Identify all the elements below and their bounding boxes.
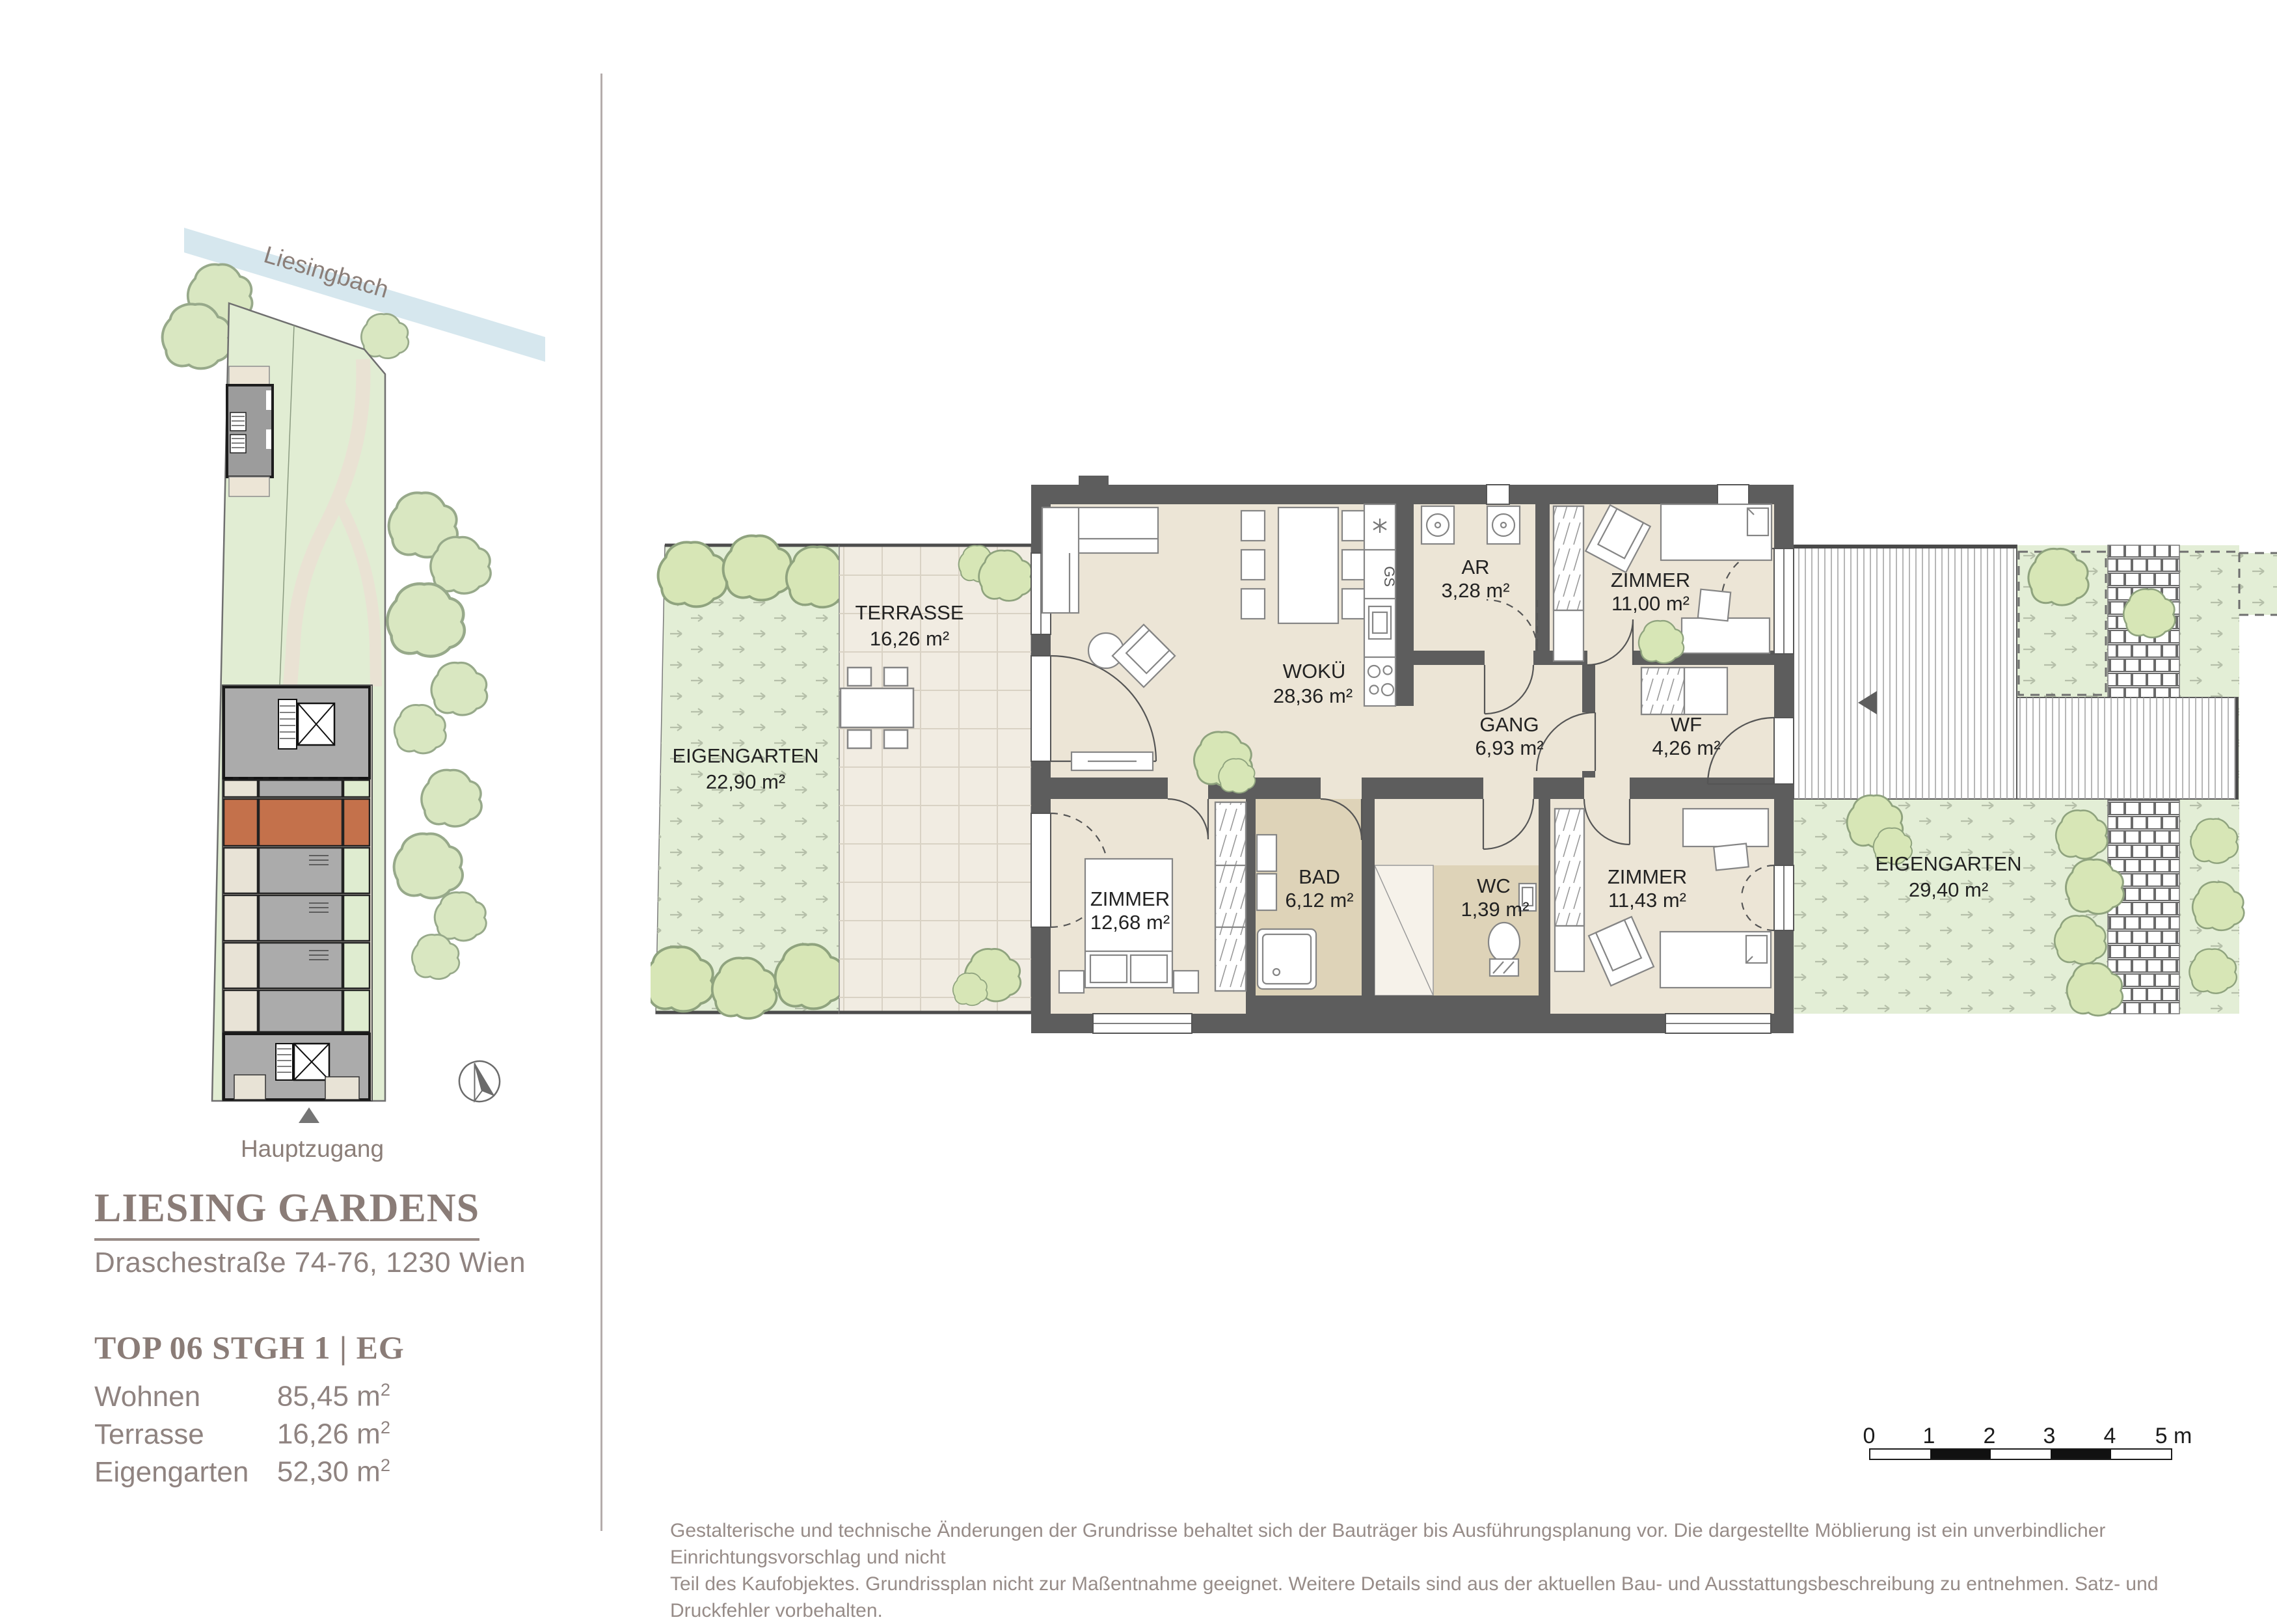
room-area-gang: 6,93 m² [1475, 737, 1543, 759]
room-label-eigengarten-left: EIGENGARTEN [672, 744, 818, 767]
dining-set [1241, 507, 1366, 623]
page-title: LIESING GARDENS [94, 1185, 479, 1241]
area-label: Wohnen [94, 1381, 200, 1413]
room-label-terrasse: TERRASSE [855, 601, 963, 624]
scale-tick: 1 [1923, 1424, 1935, 1449]
garden-left: EIGENGARTEN 22,90 m² [651, 535, 851, 1018]
scale-tick: 4 [2104, 1424, 2116, 1449]
dishwasher-label: GS [1381, 566, 1397, 587]
unit-title: TOP 06 STGH 1 | EG [94, 1329, 405, 1366]
area-row-eigengarten: Eigengarten 52,30 m2 [94, 1455, 390, 1493]
room-area-wf: 4,26 m² [1652, 737, 1720, 759]
highlighted-unit-top06 [224, 799, 370, 846]
area-value: 16,26 m2 [277, 1417, 390, 1451]
disclaimer: Gestalterische und technische Änderungen… [670, 1517, 2257, 1624]
terrace: TERRASSE 16,26 m² [839, 545, 1032, 1014]
room-label-zimmer3: ZIMMER [1608, 865, 1687, 888]
hauptzugang-marker: Hauptzugang [241, 1107, 384, 1162]
area-value: 85,45 m2 [277, 1379, 390, 1413]
site-main-building [222, 685, 372, 1101]
scale-bar: 0 1 2 3 4 5 m [1869, 1424, 2175, 1463]
area-table: Wohnen 85,45 m2 Terrasse 16,26 m2 Eigeng… [94, 1379, 390, 1493]
wardrobe-bedroom3 [1555, 809, 1584, 971]
scale-tick: 5 m [2155, 1424, 2192, 1449]
site-plan: Liesingbach [65, 202, 586, 1178]
scale-bar-segments [1869, 1448, 2172, 1460]
room-label-wc: WC [1477, 874, 1511, 897]
scale-tick: 3 [2043, 1424, 2056, 1449]
bed-bedroom3 [1660, 932, 1771, 988]
room-label-bad: BAD [1299, 865, 1340, 888]
area-label: Eigengarten [94, 1456, 249, 1489]
scale-tick: 0 [1863, 1424, 1876, 1449]
site-upper-building [227, 366, 273, 496]
bed-bedroom1 [1661, 504, 1772, 560]
room-area-terrasse: 16,26 m² [870, 627, 949, 650]
room-label-ar: AR [1461, 556, 1489, 578]
area-label: Terrasse [94, 1418, 204, 1451]
wardrobe-bedroom1 [1554, 506, 1583, 661]
hauptzugang-label: Hauptzugang [241, 1135, 384, 1162]
apartment: WOKÜ 28,36 m² AR 3,28 m² ZIMMER 11,00 m²… [1031, 476, 1794, 1033]
area-row-terrasse: Terrasse 16,26 m2 [94, 1417, 390, 1455]
room-area-ar: 3,28 m² [1441, 579, 1509, 602]
kitchen-counter [1364, 504, 1395, 706]
room-label-zimmer1: ZIMMER [1611, 569, 1690, 591]
disclaimer-line1: Gestalterische und technische Änderungen… [670, 1517, 2257, 1571]
disclaimer-line2: Teil des Kaufobjektes. Grundrissplan nic… [670, 1571, 2257, 1624]
divider-line [600, 74, 602, 1531]
room-area-zimmer2: 12,68 m² [1090, 911, 1170, 934]
area-row-wohnen: Wohnen 85,45 m2 [94, 1379, 390, 1417]
room-label-eigengarten-right: EIGENGARTEN [1875, 852, 2021, 875]
floor-plan: EIGENGARTEN 22,90 m² TERRASSE 16,26 m² [651, 470, 2277, 1042]
room-label-woku: WOKÜ [1283, 660, 1345, 683]
room-area-eigengarten-left: 22,90 m² [706, 770, 785, 793]
room-area-eigengarten-right: 29,40 m² [1909, 878, 1988, 901]
wardrobe-bedroom2 [1215, 802, 1246, 991]
area-value: 52,30 m2 [277, 1455, 390, 1489]
compass-icon [455, 1057, 504, 1106]
room-area-wc: 1,39 m² [1461, 898, 1529, 921]
room-area-zimmer3: 11,43 m² [1608, 889, 1686, 912]
room-label-wf: WF [1671, 713, 1702, 736]
room-label-gang: GANG [1479, 713, 1539, 736]
room-area-woku: 28,36 m² [1273, 684, 1353, 707]
room-area-zimmer1: 11,00 m² [1611, 592, 1690, 615]
scale-tick: 2 [1984, 1424, 1996, 1449]
outdoor-right: EIGENGARTEN 29,40 m² [1794, 545, 2277, 1016]
sideboard [1071, 752, 1153, 770]
wardrobe-wf [1641, 668, 1727, 714]
address: Draschestraße 74-76, 1230 Wien [94, 1247, 526, 1279]
room-label-zimmer2: ZIMMER [1090, 887, 1170, 910]
room-area-bad: 6,12 m² [1285, 889, 1353, 912]
